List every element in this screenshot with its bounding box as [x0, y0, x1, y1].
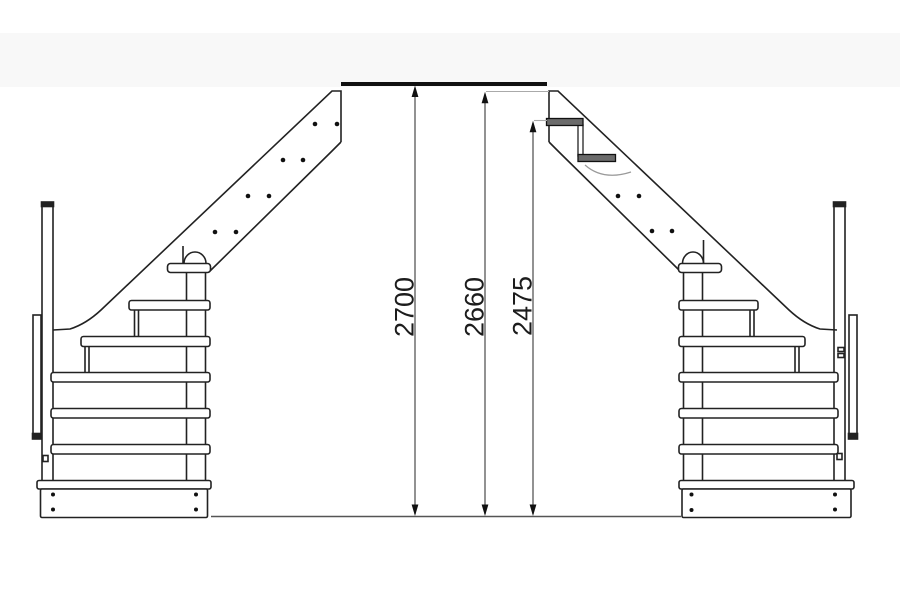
dimension-arrow-up-icon	[530, 121, 537, 133]
top-step-tread	[578, 155, 616, 162]
right-base-lip	[679, 481, 854, 490]
right-wall-strip	[849, 315, 857, 437]
right-tread	[679, 373, 838, 383]
top-step-tread	[547, 119, 584, 126]
dimensions: 2700 2660 2475	[390, 86, 550, 517]
right-tread	[679, 301, 758, 311]
bolt-dot	[313, 122, 318, 127]
right-tread	[679, 445, 838, 455]
dimension-arrow-up-icon	[482, 92, 489, 104]
left-base-box	[41, 489, 208, 518]
left-newel-collar	[168, 264, 211, 273]
right-riser	[795, 346, 799, 374]
left-base-lip	[37, 481, 211, 490]
right-newel-collar	[679, 264, 722, 273]
right-top-steps	[547, 119, 632, 176]
left-outer-post	[42, 203, 53, 481]
screw-dot	[690, 508, 694, 512]
staircase-elevation-diagram: 2700 2660 2475	[0, 0, 900, 600]
step-underside-arc	[585, 165, 631, 175]
bolt-dot	[267, 194, 272, 199]
left-tread	[81, 337, 210, 347]
right-stringer-bolts	[616, 194, 675, 234]
left-staircase	[33, 91, 342, 518]
bolt-dot	[637, 194, 642, 199]
dimension-arrow-down-icon	[412, 505, 419, 517]
left-wall-strip	[33, 315, 41, 437]
dimension-2475: 2475	[508, 121, 548, 517]
left-stringer-outer-edge	[53, 91, 341, 330]
screw-dot	[833, 493, 837, 497]
left-tread	[51, 409, 210, 419]
bolt-dot	[246, 194, 251, 199]
left-riser	[135, 309, 139, 338]
left-tread	[51, 373, 210, 383]
ceiling-band	[0, 33, 900, 87]
screw-dot	[51, 493, 55, 497]
left-outer-post-cap	[42, 202, 54, 207]
right-outer-post-cap	[834, 202, 846, 207]
right-riser	[750, 309, 754, 338]
right-staircase	[547, 91, 858, 518]
bolt-dot	[301, 158, 306, 163]
screw-dot	[194, 508, 198, 512]
left-wall-strip-cap	[33, 434, 42, 440]
left-tread	[129, 301, 210, 311]
bolt-dot	[335, 122, 340, 127]
dimension-arrow-down-icon	[530, 505, 537, 517]
dimension-label: 2475	[508, 276, 538, 336]
right-tread	[679, 337, 805, 347]
right-stringer-outer-edge	[549, 91, 837, 330]
left-tread	[51, 445, 210, 455]
left-stringer-inner-edge	[210, 142, 341, 271]
dimension-label: 2700	[390, 277, 420, 337]
bolt-dot	[650, 229, 655, 234]
screw-dot	[690, 493, 694, 497]
bolt-dot	[281, 158, 286, 163]
bolt-dot	[670, 229, 675, 234]
top-step-riser	[578, 125, 583, 156]
screw-dot	[833, 508, 837, 512]
right-outer-post	[834, 203, 845, 481]
dimension-2700: 2700	[390, 86, 420, 517]
left-stringer-bolts	[213, 122, 340, 235]
left-newel-dome-cap	[184, 252, 206, 264]
dimension-arrow-down-icon	[482, 505, 489, 517]
dimension-arrow-up-icon	[412, 86, 419, 98]
right-wall-strip-cap	[849, 434, 858, 440]
right-newel-dome-cap	[683, 252, 704, 264]
screw-dot	[194, 493, 198, 497]
bolt-dot	[234, 230, 239, 235]
bolt-dot	[213, 230, 218, 235]
diagram-canvas: 2700 2660 2475	[0, 0, 900, 600]
screw-dot	[51, 508, 55, 512]
right-base-box	[682, 489, 851, 518]
bolt-dot	[616, 194, 621, 199]
dimension-label: 2660	[460, 277, 490, 337]
right-tread	[679, 409, 838, 419]
left-riser	[85, 346, 89, 374]
